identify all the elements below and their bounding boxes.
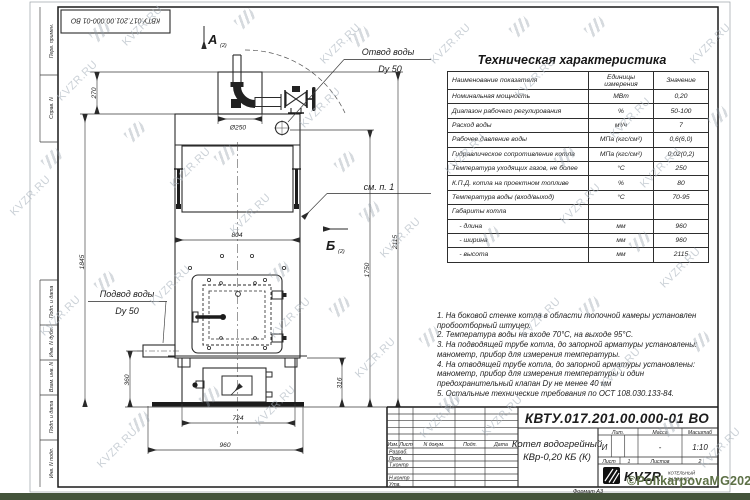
- note-item: 4. На отводящей трубе котла, до запорной…: [437, 360, 705, 389]
- svg-text:Дата: Дата: [493, 442, 508, 448]
- spec-cell: 960: [654, 233, 709, 247]
- furnace-door: [192, 275, 287, 353]
- spec-row: Диапазон рабочего регулирования%50-100: [448, 104, 709, 118]
- product-name-line2: КВр-0,20 КБ (К): [523, 452, 591, 463]
- svg-text:Пров.: Пров.: [389, 456, 403, 462]
- margin-label: Перв. примен.: [49, 24, 55, 58]
- spec-title: Техническая характеристика: [447, 53, 697, 67]
- svg-text:2: 2: [698, 459, 702, 465]
- outlet-valve: [285, 86, 316, 114]
- note-item: 5. Остальные технические требования по О…: [437, 389, 705, 399]
- spec-cell: м³/ч: [589, 118, 654, 132]
- note-item: 2. Температура воды на входе 70°С, на вы…: [437, 330, 705, 340]
- dimensions: 270 1845 360 316 1750 2115 804 724 960 Ø…: [79, 72, 403, 454]
- top-stamp-code: КВТУ.017.201.00.000-01 ВО: [70, 17, 160, 24]
- spec-cell: мм: [589, 248, 654, 262]
- svg-text:1750: 1750: [364, 262, 371, 277]
- doc-number: КВТУ.017.201.00.000-01 ВО: [525, 411, 709, 426]
- note-item: 1. На боковой стенке котла в области топ…: [437, 311, 705, 330]
- spec-row: Габариты котла: [448, 205, 709, 219]
- spec-row: - длинамм960: [448, 219, 709, 233]
- svg-text:2115: 2115: [392, 235, 399, 251]
- spec-row: К.П.Д. котла на проектном топливе%80: [448, 176, 709, 190]
- spec-cell: МПа (кгс/см²): [589, 147, 654, 161]
- svg-text:А: А: [207, 32, 217, 47]
- spec-cell: 70-95: [654, 190, 709, 204]
- bottom-strip: [0, 493, 750, 500]
- svg-text:Масса: Масса: [652, 430, 667, 436]
- view-arrow-a-icon: А (2): [204, 26, 227, 49]
- svg-text:804: 804: [231, 232, 242, 239]
- margin-label: Инв. N дубл.: [49, 327, 55, 357]
- svg-text:360: 360: [124, 374, 131, 385]
- svg-text:960: 960: [219, 442, 230, 449]
- spec-cell: - длина: [448, 219, 589, 233]
- outlet-label: Отвод воды: [362, 47, 415, 57]
- spec-row: Расход водым³/ч7: [448, 118, 709, 132]
- see-note-label: см. п. 1: [364, 182, 395, 192]
- svg-text:Т.контр: Т.контр: [389, 463, 409, 469]
- product-name-line1: Котел водогрейный: [512, 439, 603, 450]
- spec-cell: - ширина: [448, 233, 589, 247]
- svg-text:Н.контр: Н.контр: [389, 476, 410, 482]
- svg-text:Подп.: Подп.: [463, 442, 477, 448]
- spec-cell: Диапазон рабочего регулирования: [448, 104, 589, 118]
- svg-text:270: 270: [91, 87, 98, 99]
- spec-cell: 960: [654, 219, 709, 233]
- svg-text:(2): (2): [220, 43, 227, 49]
- svg-text:Изм.: Изм.: [387, 442, 398, 448]
- spec-cell: Гидравлическое сопротивление котла: [448, 147, 589, 161]
- spec-col-value: Значение: [654, 72, 709, 90]
- spec-col-name: Наименование показателя: [448, 72, 589, 90]
- svg-text:Масштаб: Масштаб: [688, 430, 713, 436]
- spec-cell: 0,6(6,0): [654, 133, 709, 147]
- spec-row: Температура воды (вход/выход)°С70-95: [448, 190, 709, 204]
- spec-cell: °С: [589, 190, 654, 204]
- spec-cell: 2115: [654, 248, 709, 262]
- spec-cell: Рабочее давление воды: [448, 133, 589, 147]
- svg-text:Лист: Лист: [398, 442, 413, 448]
- spec-cell: °С: [589, 161, 654, 175]
- callouts: Отвод воды Dy 50 Подвод воды Dy 50 см. п…: [88, 26, 431, 343]
- drawing-sheet: Перв. примен. Справ. N Подп. и дата Инв.…: [0, 0, 750, 500]
- spec-row: Температура уходящих газов, не более°С25…: [448, 161, 709, 175]
- scale-value: 1:10: [692, 443, 708, 452]
- svg-text:Ø250: Ø250: [229, 125, 246, 132]
- spec-cell: Температура уходящих газов, не более: [448, 161, 589, 175]
- spec-col-units: Единицы измерения: [589, 72, 654, 90]
- margin-label: Подп. и дата: [49, 401, 55, 434]
- svg-text:Разраб.: Разраб.: [389, 450, 408, 456]
- spec-cell: 0,02(0,2): [654, 147, 709, 161]
- spec-header-row: Наименование показателя Единицы измерени…: [448, 72, 709, 90]
- svg-text:Лит.: Лит.: [611, 430, 624, 436]
- svg-text:724: 724: [232, 415, 243, 422]
- spec-cell: [589, 205, 654, 219]
- svg-text:1845: 1845: [79, 254, 86, 269]
- mass-value: -: [659, 443, 662, 452]
- spec-cell: мм: [589, 219, 654, 233]
- svg-text:Утв.: Утв.: [389, 482, 401, 488]
- spec-table-block: Техническая характеристика Наименование …: [447, 53, 697, 263]
- svg-text:Листов: Листов: [650, 459, 670, 465]
- spec-cell: Расход воды: [448, 118, 589, 132]
- outlet-dn: Dy 50: [378, 64, 402, 74]
- svg-text:Лист: Лист: [601, 459, 616, 465]
- svg-text:1: 1: [628, 459, 631, 465]
- inlet-label: Подвод воды: [100, 289, 155, 299]
- note-item: 3. На подводящей трубе котла, до запорно…: [437, 340, 705, 359]
- svg-text:316: 316: [336, 377, 343, 388]
- spec-row: - высотамм2115: [448, 248, 709, 262]
- spec-cell: - высота: [448, 248, 589, 262]
- technical-notes: 1. На боковой стенке котла в области топ…: [437, 311, 705, 398]
- margin-label: Взам. инв. N: [49, 362, 55, 392]
- margin-label: Подп. и дата: [49, 286, 55, 319]
- spec-cell: Номинальная мощность: [448, 90, 589, 104]
- kvzr-logo-icon: [603, 467, 620, 484]
- lit-value: И: [602, 443, 608, 452]
- spec-cell: 250: [654, 161, 709, 175]
- margin-label: Справ. N: [49, 97, 55, 119]
- spec-cell: 80: [654, 176, 709, 190]
- spec-cell: Габариты котла: [448, 205, 589, 219]
- spec-cell: %: [589, 176, 654, 190]
- inlet-dn: Dy 50: [115, 306, 139, 316]
- spec-cell: 7: [654, 118, 709, 132]
- spec-table: Наименование показателя Единицы измерени…: [447, 71, 709, 263]
- spec-row: Гидравлическое сопротивление котлаМПа (к…: [448, 147, 709, 161]
- margin-label: Инв. N подл.: [49, 448, 55, 478]
- spec-cell: [654, 205, 709, 219]
- spec-row: Номинальная мощностьМВт0,20: [448, 90, 709, 104]
- spec-cell: К.П.Д. котла на проектном топливе: [448, 176, 589, 190]
- spec-cell: 50-100: [654, 104, 709, 118]
- svg-text:(2): (2): [338, 249, 345, 255]
- spec-cell: мм: [589, 233, 654, 247]
- spec-row: - ширинамм960: [448, 233, 709, 247]
- svg-text:N докум.: N докум.: [424, 442, 445, 448]
- spec-cell: 0,20: [654, 90, 709, 104]
- spec-cell: МВт: [589, 90, 654, 104]
- spec-cell: %: [589, 104, 654, 118]
- spec-cell: МПа (кгс/см²): [589, 133, 654, 147]
- ash-section: [152, 356, 307, 407]
- spec-row: Рабочее давление водыМПа (кгс/см²)0,6(6,…: [448, 133, 709, 147]
- spec-cell: Температура воды (вход/выход): [448, 190, 589, 204]
- view-arrow-b-icon: Б (2): [323, 229, 348, 255]
- boiler-front-view: [137, 50, 345, 434]
- svg-text:Б: Б: [326, 238, 335, 253]
- credit-watermark: ©PolikarpovaMG2021: [627, 474, 750, 488]
